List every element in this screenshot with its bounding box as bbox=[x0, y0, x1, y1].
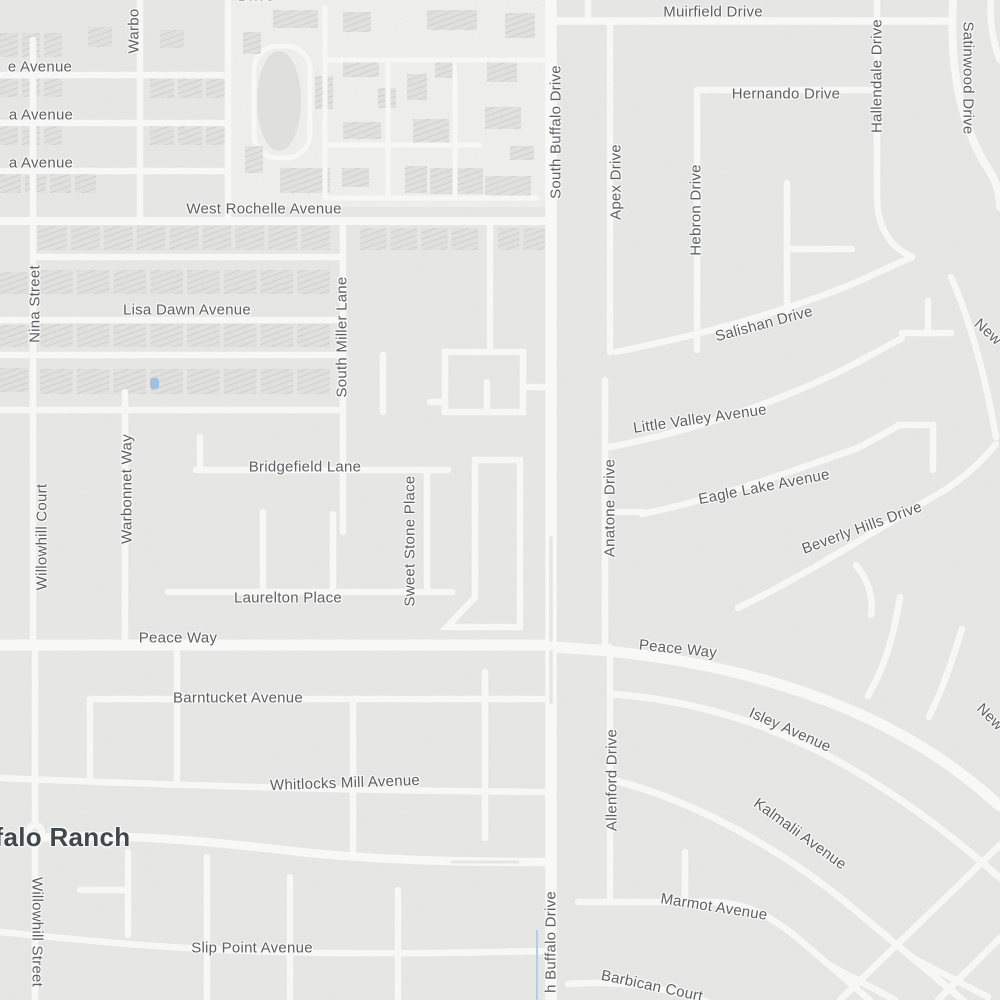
street-label: New bbox=[974, 701, 1000, 733]
street-label: Drive bbox=[238, 0, 274, 4]
street-label: Muirfield Drive bbox=[663, 5, 763, 20]
street-label: Apex Drive bbox=[609, 144, 624, 220]
street-label: Peace Way bbox=[638, 637, 718, 660]
street-label: Barntucket Avenue bbox=[173, 691, 303, 706]
street-label: Laurelton Place bbox=[234, 591, 342, 606]
street-label: Willowhill Court bbox=[35, 484, 50, 591]
labels-layer: e Avenuea Avenuea AvenueWarboDriveWest R… bbox=[0, 0, 1000, 1000]
street-label: Anatone Drive bbox=[603, 459, 618, 557]
street-label: a Avenue bbox=[9, 156, 73, 171]
street-label: New bbox=[972, 316, 1000, 348]
street-label: h Buffalo Drive bbox=[544, 891, 559, 993]
street-label: Whitlocks Mill Avenue bbox=[270, 773, 420, 793]
street-label: Bridgefield Lane bbox=[249, 460, 361, 475]
street-label: Allenford Drive bbox=[605, 729, 620, 831]
street-label: Hallendale Drive bbox=[870, 19, 885, 133]
street-label: Marmot Avenue bbox=[659, 891, 768, 923]
street-label: Salishan Drive bbox=[714, 304, 815, 344]
street-label: Little Valley Avenue bbox=[632, 402, 767, 436]
street-label: Kalmalii Avenue bbox=[751, 796, 849, 873]
street-label: South Buffalo Drive bbox=[549, 65, 564, 199]
street-label: a Avenue bbox=[9, 108, 73, 123]
street-label: Sweet Stone Place bbox=[403, 476, 418, 607]
street-label: Beverly Hills Drive bbox=[800, 499, 924, 556]
street-label: West Rochelle Avenue bbox=[186, 202, 341, 217]
street-label: Nina Street bbox=[28, 265, 43, 343]
street-label: Isley Avenue bbox=[747, 705, 833, 754]
street-label: Lisa Dawn Avenue bbox=[123, 303, 251, 318]
street-label: Hebron Drive bbox=[689, 164, 704, 255]
street-label: Eagle Lake Avenue bbox=[697, 467, 831, 507]
street-label: Satinwood Drive bbox=[961, 22, 976, 135]
street-label: Warbonnet Way bbox=[120, 434, 135, 544]
street-label: Slip Point Avenue bbox=[191, 941, 313, 956]
street-label: South Miller Lane bbox=[335, 277, 350, 398]
neighborhood-label: ffalo Ranch bbox=[0, 824, 130, 850]
street-label: Warbo bbox=[127, 9, 142, 54]
street-label: Willowhill Street bbox=[30, 877, 45, 987]
street-label: e Avenue bbox=[8, 60, 72, 75]
street-label: Barbican Court bbox=[600, 968, 704, 1000]
street-label: Hernando Drive bbox=[732, 87, 841, 102]
street-label: Peace Way bbox=[139, 631, 217, 646]
map-canvas[interactable]: e Avenuea Avenuea AvenueWarboDriveWest R… bbox=[0, 0, 1000, 1000]
